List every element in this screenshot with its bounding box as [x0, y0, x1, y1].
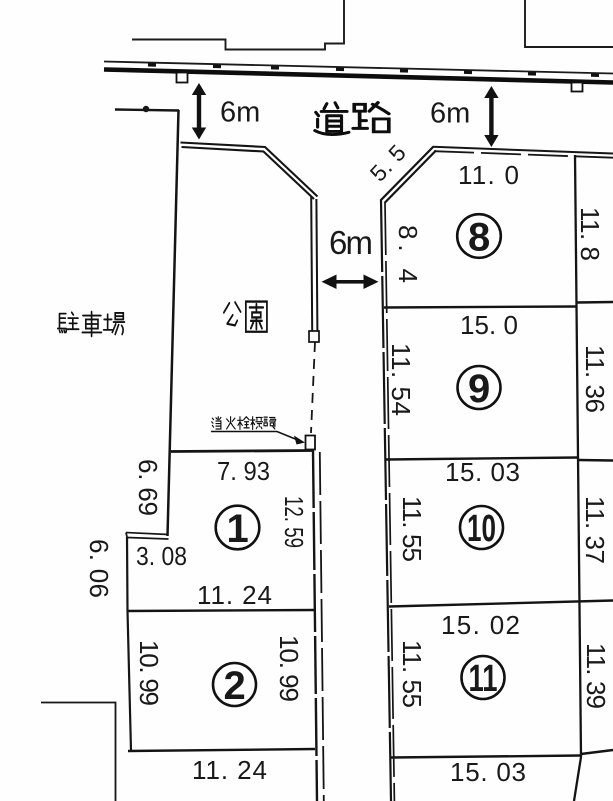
svg-text:10. 99: 10. 99 [134, 640, 164, 706]
svg-text:12. 59: 12. 59 [279, 496, 309, 548]
svg-text:11. 36: 11. 36 [580, 345, 610, 413]
svg-text:6m: 6m [430, 98, 470, 130]
svg-text:15. 03: 15. 03 [450, 757, 526, 787]
svg-text:15. 0: 15. 0 [460, 310, 518, 340]
svg-text:11. 37: 11. 37 [580, 496, 610, 564]
svg-text:9: 9 [468, 367, 490, 411]
svg-text:1: 1 [227, 507, 249, 551]
svg-text:11. 8: 11. 8 [575, 207, 605, 261]
svg-text:15. 02: 15. 02 [441, 610, 520, 640]
svg-text:6m: 6m [220, 97, 260, 129]
svg-text:3. 08: 3. 08 [136, 541, 187, 571]
svg-text:7. 93: 7. 93 [217, 456, 270, 486]
svg-text:11. 39: 11. 39 [581, 643, 611, 709]
svg-text:11. 0: 11. 0 [458, 160, 519, 190]
svg-text:11. 55: 11. 55 [397, 640, 427, 708]
svg-text:6m: 6m [329, 224, 373, 261]
svg-text:11. 24: 11. 24 [197, 580, 272, 610]
svg-text:11. 55: 11. 55 [397, 496, 427, 562]
svg-text:6. 06: 6. 06 [84, 539, 114, 598]
svg-text:8: 8 [468, 216, 490, 260]
svg-text:6. 69: 6. 69 [133, 459, 163, 516]
svg-text:10. 99: 10. 99 [274, 635, 304, 702]
svg-text:10: 10 [467, 508, 496, 550]
svg-text:11: 11 [469, 658, 498, 700]
svg-text:11. 54: 11. 54 [386, 343, 416, 416]
svg-text:15. 03: 15. 03 [445, 457, 520, 487]
svg-text:2: 2 [224, 664, 246, 708]
svg-text:11. 24: 11. 24 [192, 755, 267, 785]
